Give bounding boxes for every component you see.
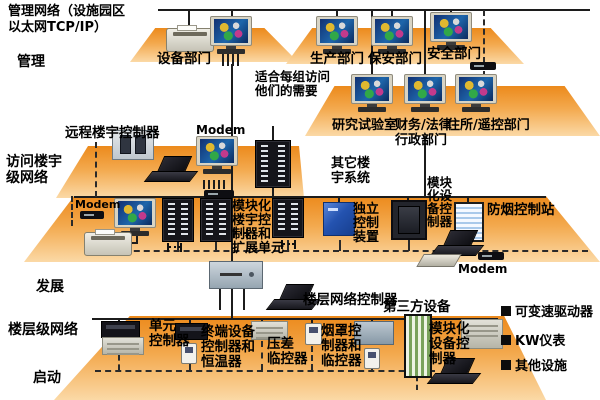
label-research-lab: 研究试验室 <box>332 119 397 134</box>
label-finance-legal: 财务/法律 行政部门 <box>395 119 452 148</box>
desktop-computer-icon <box>196 136 238 174</box>
label-modem-right: Modem <box>458 263 507 276</box>
stage-label-access: 访问楼宇 级网络 <box>6 155 62 186</box>
label-remote-building-controller: 远程楼宇控制器 <box>65 126 160 141</box>
building-controller-rack-icon <box>255 140 291 188</box>
dashed-modem-line <box>71 196 73 226</box>
laptop-icon <box>148 156 194 182</box>
label-pressure-monitor: 压差 临控器 <box>267 337 308 367</box>
label-third-party: 第三方设备 <box>383 300 451 315</box>
stage-label-startup: 启动 <box>33 371 61 387</box>
legend-square-icon <box>501 360 511 370</box>
desktop-computer-icon <box>430 12 472 50</box>
modular-equipment-rack-icon <box>404 314 432 378</box>
dashed-tick <box>189 364 191 370</box>
label-modem-left: Modem <box>75 199 120 211</box>
legend-square-icon <box>501 306 511 316</box>
stage-label-management: 管理 <box>17 55 45 71</box>
thermostat-icon <box>364 348 380 369</box>
legend-label: 可变速驱动器 <box>515 301 593 320</box>
dashed-tick <box>408 240 410 251</box>
dashed-tick <box>118 355 120 370</box>
label-standalone-control: 独立 控制 装置 <box>353 203 379 245</box>
modem-icon <box>80 211 104 219</box>
unit-controller-icon <box>101 321 140 338</box>
controller-leg <box>231 288 233 318</box>
modem-icon <box>204 190 234 198</box>
label-residence-remote: 住所/遥控部门 <box>447 119 530 134</box>
diagram-title: 管理网络（设施园区 以太网TCP/IP） <box>8 4 125 36</box>
label-smoke-control-station: 防烟控制站 <box>487 203 555 218</box>
modem-icon <box>478 252 504 260</box>
desktop-computer-icon <box>316 16 358 54</box>
dashed-modem-line <box>95 142 97 197</box>
label-other-building-systems: 其它楼 宇系统 <box>331 157 370 186</box>
stage-label-floor-network: 楼层级网络 <box>8 323 78 339</box>
floor-network-controller-icon <box>209 261 263 289</box>
desktop-computer-icon <box>455 74 497 112</box>
label-access-note: 适合每组访问 他们的需要 <box>255 70 330 98</box>
desktop-computer-icon <box>210 16 252 54</box>
dashed-tick <box>311 346 313 370</box>
scanner-icon <box>416 254 462 267</box>
modular-controller-rack-icon <box>200 198 232 242</box>
controller-leg <box>243 288 245 310</box>
label-unit-controller: 单元 控制器 <box>149 319 190 349</box>
legend-label: KW仪表 <box>515 330 565 349</box>
expansion-connector-icon <box>167 243 182 252</box>
dashed-trunk-line <box>84 250 588 252</box>
legend-item-variable-speed-drive: 可变速驱动器 <box>501 301 593 320</box>
label-safety-dept: 安全部门 <box>427 47 481 62</box>
laptop-icon <box>434 230 480 256</box>
label-terminal-controller: 终端设备 控制器和 恒温器 <box>201 325 255 370</box>
dashed-tick <box>261 341 263 370</box>
desktop-computer-icon <box>351 74 393 112</box>
printer-icon <box>166 28 214 52</box>
controller-leg <box>219 288 221 310</box>
label-modular-equipment-controller: 模块 化设 备控 制器 <box>427 176 452 228</box>
dashed-trunk-line <box>95 370 435 372</box>
desktop-computer-icon <box>371 16 413 54</box>
label-hood-controller: 烟罩控 制器和 临控器 <box>321 324 362 369</box>
dashed-tick <box>215 242 217 251</box>
label-equipment-dept: 设备部门 <box>157 52 211 67</box>
stage-label-development: 发展 <box>36 280 64 296</box>
label-production-dept: 生产部门 <box>310 52 364 67</box>
modular-equipment-controller-icon <box>391 200 427 240</box>
legend-label: 其他设施 <box>515 355 567 374</box>
label-security-dept: 保安部门 <box>368 52 422 67</box>
dashed-tick <box>416 376 418 390</box>
printer-icon <box>84 232 132 256</box>
label-modular-building-controller: 模块化 楼宇控 制器和 扩展单元 <box>232 200 284 256</box>
label-modem-top: Modem <box>196 124 245 137</box>
modem-icon <box>470 62 496 70</box>
unit-controller-base-icon <box>102 337 144 355</box>
dashed-drop-line <box>483 10 485 63</box>
management-bus-line <box>158 9 590 11</box>
hood-monitor-icon <box>305 323 322 345</box>
standalone-control-device-icon <box>323 202 355 236</box>
dashed-tick <box>339 240 341 251</box>
cable-bundle <box>203 180 225 189</box>
label-modular-equipment-controller-2: 模块化 设备控 制器 <box>429 322 470 367</box>
network-architecture-diagram: 管理网络（设施园区 以太网TCP/IP） 管理 设备部门 生产部门 保安部门 安… <box>0 0 600 400</box>
modular-controller-rack-icon <box>162 198 194 242</box>
desktop-computer-icon <box>404 74 446 112</box>
legend-item-kw-meter: KW仪表 <box>501 330 565 349</box>
legend-item-other-facilities: 其他设施 <box>501 355 567 374</box>
legend-square-icon <box>501 335 511 345</box>
